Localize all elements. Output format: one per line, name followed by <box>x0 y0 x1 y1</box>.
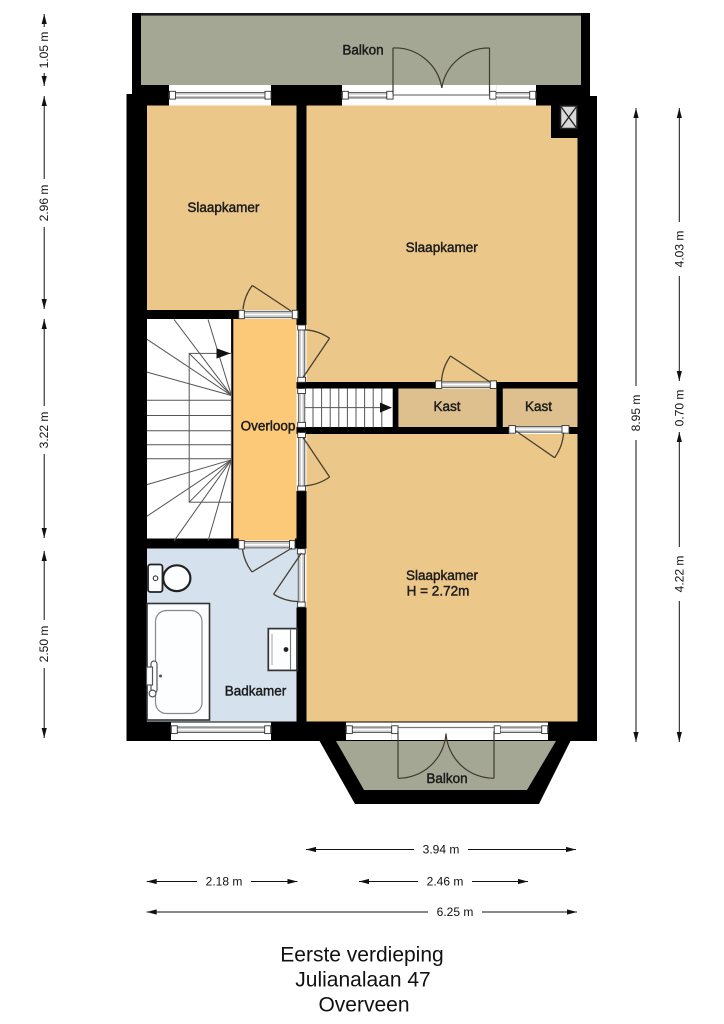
svg-text:Kast: Kast <box>433 399 460 414</box>
svg-text:Kast: Kast <box>525 399 552 414</box>
svg-text:Slaapkamer: Slaapkamer <box>187 200 260 215</box>
svg-text:3.94 m: 3.94 m <box>423 843 460 857</box>
svg-text:Overveen: Overveen <box>318 994 409 1017</box>
svg-text:Badkamer: Badkamer <box>225 684 287 699</box>
svg-text:1.05 m: 1.05 m <box>37 32 51 69</box>
svg-text:Overloop: Overloop <box>241 419 296 434</box>
svg-text:4.22 m: 4.22 m <box>672 556 686 593</box>
svg-text:H = 2.72m: H = 2.72m <box>407 584 470 599</box>
svg-text:Slaapkamer: Slaapkamer <box>406 568 479 583</box>
svg-text:3.22 m: 3.22 m <box>37 412 51 449</box>
svg-text:Balkon: Balkon <box>342 43 383 58</box>
svg-text:8.95 m: 8.95 m <box>629 395 643 432</box>
svg-text:6.25 m: 6.25 m <box>437 905 474 919</box>
svg-text:Slaapkamer: Slaapkamer <box>406 240 479 255</box>
svg-text:Balkon: Balkon <box>426 771 467 786</box>
svg-text:0.70 m: 0.70 m <box>672 390 686 427</box>
svg-text:4.03 m: 4.03 m <box>672 231 686 268</box>
svg-text:Julianalaan 47: Julianalaan 47 <box>295 969 430 992</box>
svg-text:2.18 m: 2.18 m <box>206 875 243 889</box>
svg-text:2.50 m: 2.50 m <box>37 626 51 663</box>
svg-text:2.46 m: 2.46 m <box>427 875 464 889</box>
svg-text:Eerste verdieping: Eerste verdieping <box>280 944 443 967</box>
svg-text:2.96 m: 2.96 m <box>37 185 51 222</box>
